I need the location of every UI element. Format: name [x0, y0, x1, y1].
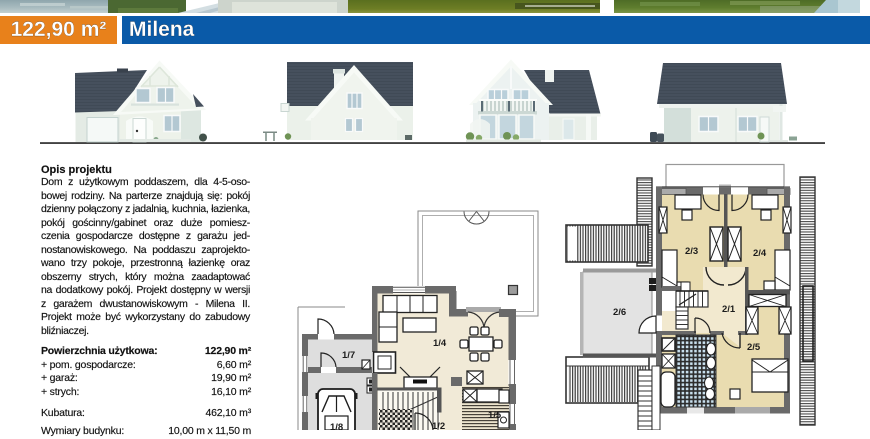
svg-text:1/7: 1/7: [342, 350, 355, 361]
svg-text:2/1: 2/1: [722, 304, 736, 315]
svg-text:2/3: 2/3: [685, 246, 698, 257]
svg-text:2/4: 2/4: [753, 248, 767, 259]
svg-text:1/4: 1/4: [433, 338, 447, 349]
svg-text:1/2: 1/2: [432, 421, 445, 430]
svg-text:1/5: 1/5: [488, 410, 502, 421]
svg-text:2/6: 2/6: [613, 307, 626, 318]
svg-text:2/5: 2/5: [747, 342, 761, 353]
svg-text:1/8: 1/8: [330, 422, 343, 430]
